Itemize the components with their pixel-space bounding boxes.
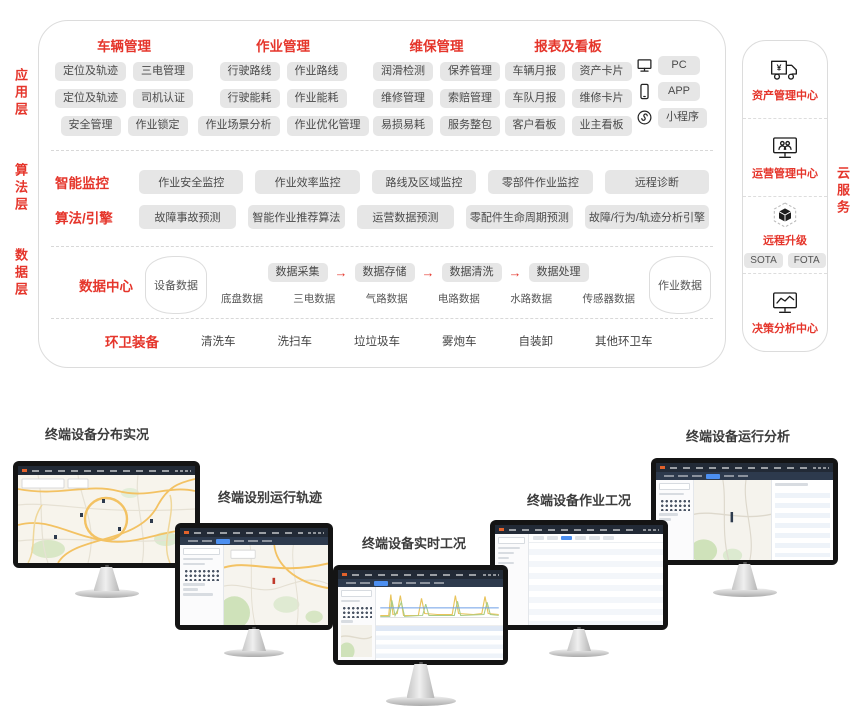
nav-menu-items (509, 529, 638, 531)
data-layer-row: 数据中心 设备数据 数据采集 → 数据存储 → 数据清洗 → 数据处理 底盘数据… (39, 247, 725, 318)
monitor-users-icon (769, 134, 801, 162)
access-pc: PC (636, 56, 700, 75)
monitor-screen (490, 520, 668, 630)
feature-chip: 行驶能耗 (220, 89, 280, 108)
algo-chip: 运营数据预测 (357, 205, 454, 229)
data-source: 气路数据 (366, 291, 408, 306)
access-label: PC (658, 56, 700, 75)
layer-label-application: 应用层 (11, 68, 30, 119)
feature-chip: 易损易耗 (373, 116, 433, 135)
algo-chip: 智能作业推荐算法 (248, 205, 345, 229)
algo-chip: 零配件生命周期预测 (466, 205, 573, 229)
line-title: 智能监控 (55, 172, 139, 192)
equipment-item: 洗扫车 (278, 333, 313, 349)
nav-user-area (483, 574, 499, 576)
monitor-stand-neck (242, 629, 266, 651)
feature-chip: 润滑检测 (373, 62, 433, 81)
algo-chip: 路线及区域监控 (372, 170, 476, 194)
remote-upgrade-section: 远程升级 SOTA FOTA (743, 196, 827, 274)
monitor-realtime (333, 565, 508, 706)
nav-menu-items (194, 532, 303, 534)
monitor-stand-neck (94, 567, 120, 591)
monitor-label-analysis: 终端设备运行分析 (686, 426, 790, 445)
nav-user-area (813, 467, 829, 469)
algo-chip: 远程诊断 (605, 170, 709, 194)
feature-chip: 维修管理 (373, 89, 433, 108)
app-logo (22, 469, 27, 472)
flow-arrow: → (509, 265, 522, 280)
data-flow: 数据采集 → 数据存储 → 数据清洗 → 数据处理 底盘数据 三电数据 气路数据… (219, 263, 637, 306)
data-source: 底盘数据 (221, 291, 263, 306)
data-source: 电路数据 (438, 291, 480, 306)
ota-cube-icon (769, 201, 801, 229)
analysis-map (694, 480, 771, 560)
cloud-section-label: 运营管理中心 (752, 165, 818, 181)
feature-chip: 资产卡片 (572, 62, 632, 81)
feature-chip: 定位及轨迹 (55, 62, 126, 81)
feature-chip: 客户看板 (505, 116, 565, 135)
access-miniprogram: 小程序 (636, 108, 707, 127)
algo-chip: 零部件作业监控 (488, 170, 592, 194)
app-navbar (656, 463, 833, 472)
ota-chip: FOTA (788, 253, 826, 268)
svg-text:¥: ¥ (777, 63, 782, 73)
panel-search (498, 537, 525, 544)
access-label: 小程序 (658, 108, 707, 127)
feature-chip: 行驶路线 (220, 62, 280, 81)
group-title: 作业管理 (256, 35, 310, 55)
flow-arrow: → (422, 265, 435, 280)
trajectory-map (224, 545, 328, 625)
app-subnav (338, 579, 503, 587)
active-tab (216, 539, 230, 544)
algorithm-engine-line: 算法/引擎 故障事故预测 智能作业推荐算法 运营数据预测 零配件生命周期预测 故… (55, 205, 709, 229)
miniprogram-icon (636, 109, 653, 126)
equipment-row: 环卫装备 清洗车 洗扫车 垃垃圾车 雾炮车 自装卸 其他环卫车 (39, 319, 725, 351)
monitor-screen (651, 458, 838, 565)
panel-search (341, 590, 372, 597)
monitor-stand-neck (407, 664, 435, 698)
layer-label-algorithm: 算法层 (11, 163, 30, 214)
feature-chip: 作业场景分析 (198, 116, 280, 135)
monitor-trajectory (175, 523, 333, 657)
equipment-item: 自装卸 (519, 333, 554, 349)
feature-chip: 服务整包 (440, 116, 500, 135)
algo-chip: 作业安全监控 (139, 170, 243, 194)
realtime-main (376, 587, 503, 660)
application-layer-row: 车辆管理 定位及轨迹三电管理 定位及轨迹司机认证 安全管理作业锁定 作业管理 行… (39, 21, 725, 150)
monitor-stand-neck (567, 629, 591, 651)
monitor-screen (175, 523, 333, 630)
cloud-section-label: 远程升级 (763, 232, 807, 248)
feature-chip: 作业优化管理 (287, 116, 369, 135)
cloud-service-panel: ¥ 资产管理中心 运营管理中心 远程升级 SO (742, 40, 828, 352)
app-group-vehicle: 车辆管理 定位及轨迹三电管理 定位及轨迹司机认证 安全管理作业锁定 (55, 35, 193, 144)
app-subnav (180, 537, 328, 545)
active-tab (706, 474, 720, 479)
feature-chip: 维修卡片 (572, 89, 632, 108)
table-toolbar (529, 534, 663, 543)
app-logo (660, 466, 665, 469)
app-navbar (180, 528, 328, 537)
flow-step: 数据清洗 (442, 263, 502, 282)
algo-chip: 故障/行为/轨迹分析引擎 (585, 205, 709, 229)
feature-chip: 车辆月报 (505, 62, 565, 81)
flow-step: 数据处理 (529, 263, 589, 282)
nav-menu-items (670, 467, 808, 469)
data-source: 水路数据 (510, 291, 552, 306)
signal-table (376, 631, 503, 660)
monitor-analysis (651, 458, 838, 597)
monitor-workstatus (490, 520, 668, 657)
app-group-operation: 作业管理 行驶路线作业路线 行驶能耗作业能耗 作业场景分析作业优化管理 (198, 35, 369, 144)
monitor-distribution (13, 461, 200, 598)
access-label: APP (658, 82, 700, 101)
nav-user-area (308, 532, 324, 534)
group-title: 维保管理 (410, 35, 464, 55)
equipment-item: 垃垃圾车 (354, 333, 400, 349)
analysis-table (775, 488, 830, 557)
active-tab (374, 581, 388, 586)
app-subnav (656, 472, 833, 480)
signal-panel (338, 587, 376, 660)
nav-menu-items (352, 574, 478, 576)
monitor-stand-neck (732, 564, 758, 590)
feature-chip: 安全管理 (61, 116, 121, 135)
cloud-service-side-label: 云服务 (833, 166, 851, 217)
app-navbar (18, 466, 195, 475)
active-filter-chip (561, 536, 572, 540)
data-source: 三电数据 (293, 291, 335, 306)
architecture-panel: 车辆管理 定位及轨迹三电管理 定位及轨迹司机认证 安全管理作业锁定 作业管理 行… (38, 20, 726, 368)
app-icon (636, 83, 653, 100)
fleet-map (18, 475, 195, 563)
data-center-title: 数据中心 (79, 275, 133, 295)
access-app: APP (636, 82, 700, 101)
status-icon-grid (659, 498, 690, 511)
status-icon-grid (183, 568, 220, 581)
line-title: 算法/引擎 (55, 207, 139, 227)
nav-user-area (175, 470, 191, 472)
flow-step: 数据存储 (355, 263, 415, 282)
group-title: 车辆管理 (97, 35, 151, 55)
app-navbar (338, 570, 503, 579)
group-title: 报表及看板 (534, 35, 602, 55)
pc-icon (636, 57, 653, 74)
asset-management-section: ¥ 资产管理中心 (743, 41, 827, 118)
layer-label-data: 数据层 (11, 248, 30, 299)
feature-chip: 作业锁定 (128, 116, 188, 135)
nav-menu-items (32, 470, 170, 472)
vehicle-list-panel (180, 545, 224, 625)
panel-search (183, 548, 220, 555)
monitor-label-workstatus: 终端设备作业工况 (527, 490, 631, 509)
feature-chip: 定位及轨迹 (55, 89, 126, 108)
work-status-main (529, 534, 663, 625)
status-icon-grid (341, 605, 372, 618)
app-logo (184, 531, 189, 534)
monitor-label-trajectory: 终端设别运行轨迹 (218, 487, 322, 506)
analysis-table-panel (771, 480, 833, 560)
decision-analysis-section: 决策分析中心 (743, 273, 827, 351)
flow-step: 数据采集 (268, 263, 328, 282)
feature-chip: 保养管理 (440, 62, 500, 81)
work-status-table (529, 543, 663, 625)
algo-chip: 故障事故预测 (139, 205, 236, 229)
panel-search (659, 483, 690, 490)
cloud-section-label: 决策分析中心 (752, 320, 818, 336)
equipment-item: 清洗车 (201, 333, 236, 349)
access-terminals: PC APP 小程序 (636, 35, 707, 144)
cloud-section-label: 资产管理中心 (752, 87, 818, 103)
truck-yen-icon: ¥ (769, 56, 801, 84)
page: 应用层 算法层 数据层 车辆管理 定位及轨迹三电管理 定位及轨迹司机认证 安全管… (0, 0, 851, 715)
feature-chip: 作业路线 (287, 62, 347, 81)
monitor-chart-icon (769, 289, 801, 317)
app-logo (342, 573, 347, 576)
algorithm-layer-row: 智能监控 作业安全监控 作业效率监控 路线及区域监控 零部件作业监控 远程诊断 … (39, 151, 725, 246)
monitor-screen (13, 461, 200, 568)
feature-chip: 索赔管理 (440, 89, 500, 108)
job-data-store: 作业数据 (649, 256, 711, 314)
feature-chip: 三电管理 (133, 62, 193, 81)
feature-chip: 业主看板 (572, 116, 632, 135)
operation-center-section: 运营管理中心 (743, 118, 827, 196)
monitor-label-distribution: 终端设备分布实况 (45, 424, 149, 443)
signal-chart (376, 587, 503, 626)
monitor-screen (333, 565, 508, 665)
app-navbar (495, 525, 663, 534)
smart-monitoring-line: 智能监控 作业安全监控 作业效率监控 路线及区域监控 零部件作业监控 远程诊断 (55, 170, 709, 194)
nav-user-area (643, 529, 659, 531)
algo-chip: 作业效率监控 (255, 170, 359, 194)
ota-chip: SOTA (744, 253, 782, 268)
feature-chip: 司机认证 (133, 89, 193, 108)
monitor-label-realtime: 终端设备实时工况 (362, 533, 466, 552)
equipment-item: 雾炮车 (442, 333, 477, 349)
data-source: 传感器数据 (582, 291, 635, 306)
equipment-item: 其他环卫车 (595, 333, 653, 349)
equipment-title: 环卫装备 (105, 331, 159, 351)
flow-arrow: → (335, 265, 348, 280)
feature-chip: 车队月报 (505, 89, 565, 108)
app-group-reports: 报表及看板 车辆月报资产卡片 车队月报维修卡片 客户看板业主看板 (505, 35, 632, 144)
mini-map (341, 625, 372, 657)
app-logo (499, 528, 504, 531)
device-data-store: 设备数据 (145, 256, 207, 314)
feature-chip: 作业能耗 (287, 89, 347, 108)
app-group-maintenance: 维保管理 润滑检测保养管理 维修管理索赔管理 易损易耗服务整包 (373, 35, 500, 144)
